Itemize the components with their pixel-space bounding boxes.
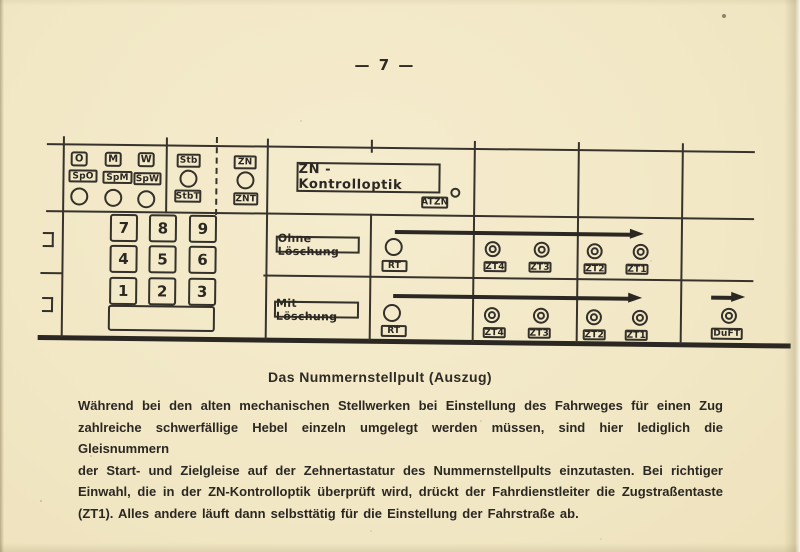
button-duft: DuFT	[711, 328, 743, 340]
body-text: Während bei den alten mechanischen Stell…	[78, 395, 723, 524]
button-zt1-ohne: ZT1	[625, 264, 648, 275]
key-1: 1	[109, 277, 137, 305]
button-m: M	[105, 152, 122, 167]
nummernstellpult-diagram: O M W SpO SpM SpW Stb StbT ZN ZNT ZN - K…	[38, 132, 800, 359]
button-zt3-ohne: ZT3	[528, 262, 551, 273]
panel-row-line-2-stub	[40, 272, 62, 274]
body-text-line: Einwahl, die in der ZN-Kontrolloptik übe…	[78, 481, 723, 503]
row-label-ohne-loeschung: Ohne Löschung	[276, 236, 360, 254]
key-9: 9	[189, 215, 217, 243]
flow-arrow-mit	[393, 294, 629, 300]
ring-zt4-ohne	[485, 241, 501, 257]
edge-bracket-top	[43, 232, 54, 247]
body-text-line: zahlreiche schwerfällige Hebel einzeln u…	[78, 417, 723, 460]
divider-stb-zn-dashed	[215, 137, 218, 215]
button-rt-ohne: RT	[381, 260, 407, 272]
key-5: 5	[148, 245, 176, 273]
button-rt-mit: RT	[381, 325, 407, 337]
button-stb: Stb	[177, 154, 201, 168]
button-o: O	[71, 151, 88, 166]
button-zt4-ohne: ZT4	[483, 261, 506, 272]
key-6: 6	[188, 246, 216, 274]
button-atzn: ATZN	[421, 196, 448, 208]
divider-rt-zt43	[472, 141, 476, 342]
ring-zt1-mit	[632, 310, 648, 326]
lamp-spo	[70, 187, 88, 205]
body-text-line: der Start- und Zielgleise auf der Zehner…	[78, 460, 723, 482]
body-text-line: (ZT1). Alles andere läuft dann selbsttät…	[78, 503, 723, 525]
scanned-page: — 7 — O M W SpO SpM SpW Stb StbT ZN	[0, 0, 800, 552]
button-zn: ZN	[234, 155, 257, 169]
divider-zt1-duft	[680, 143, 684, 344]
key-7: 7	[110, 214, 138, 242]
button-spw: SpW	[133, 172, 161, 185]
lamp-spw	[137, 190, 155, 208]
paper-speck	[40, 500, 42, 502]
zn-kontrolloptik-box: ZN - Kontrolloptik	[296, 162, 440, 194]
button-znt: ZNT	[233, 192, 258, 205]
ring-zt2-ohne	[587, 243, 603, 259]
page-number: — 7 —	[0, 56, 770, 74]
lamp-atzn	[450, 188, 460, 198]
row-label-mit-loeschung: Mit Löschung	[274, 301, 359, 319]
lamp-rt-ohne	[385, 238, 403, 256]
divider-owm-stb	[165, 137, 168, 213]
flow-arrow-duft	[711, 296, 732, 300]
button-spm: SpM	[102, 171, 132, 184]
panel-left-line	[61, 136, 65, 337]
lamp-zn	[236, 171, 254, 189]
lamp-stb	[179, 170, 197, 188]
lamp-spm	[104, 189, 122, 207]
panel-bottom-line	[38, 335, 791, 348]
button-zt2-mit: ZT2	[583, 329, 606, 340]
button-w: W	[138, 152, 155, 167]
flow-arrow-ohne	[395, 230, 631, 236]
button-zt3-mit: ZT3	[528, 328, 551, 339]
button-stbt: StbT	[174, 190, 201, 203]
ring-zt3-mit	[533, 308, 549, 324]
button-zt4-mit: ZT4	[483, 327, 506, 338]
divider-tick-keypad-label	[371, 140, 373, 153]
ring-zt3-ohne	[534, 242, 550, 258]
ring-duft	[721, 308, 737, 324]
button-spo: SpO	[68, 169, 97, 182]
button-zt2-ohne: ZT2	[583, 263, 606, 274]
ring-zt2-mit	[586, 309, 602, 325]
divider-zt3-zt2	[576, 142, 580, 343]
key-2: 2	[148, 277, 176, 305]
ring-zt1-ohne	[633, 244, 649, 260]
divider-zn-kontrolloptik	[265, 139, 269, 340]
lamp-rt-mit	[383, 304, 401, 322]
ring-zt4-mit	[484, 307, 500, 323]
edge-bracket-bottom	[42, 297, 53, 312]
button-zt1-mit: ZT1	[625, 330, 648, 341]
key-8: 8	[149, 214, 177, 242]
body-text-line: Während bei den alten mechanischen Stell…	[78, 395, 723, 417]
key-3: 3	[188, 278, 216, 306]
key-4: 4	[109, 245, 137, 273]
figure-caption: Das Nummernstellpult (Auszug)	[0, 369, 760, 385]
key-blank	[108, 305, 215, 332]
